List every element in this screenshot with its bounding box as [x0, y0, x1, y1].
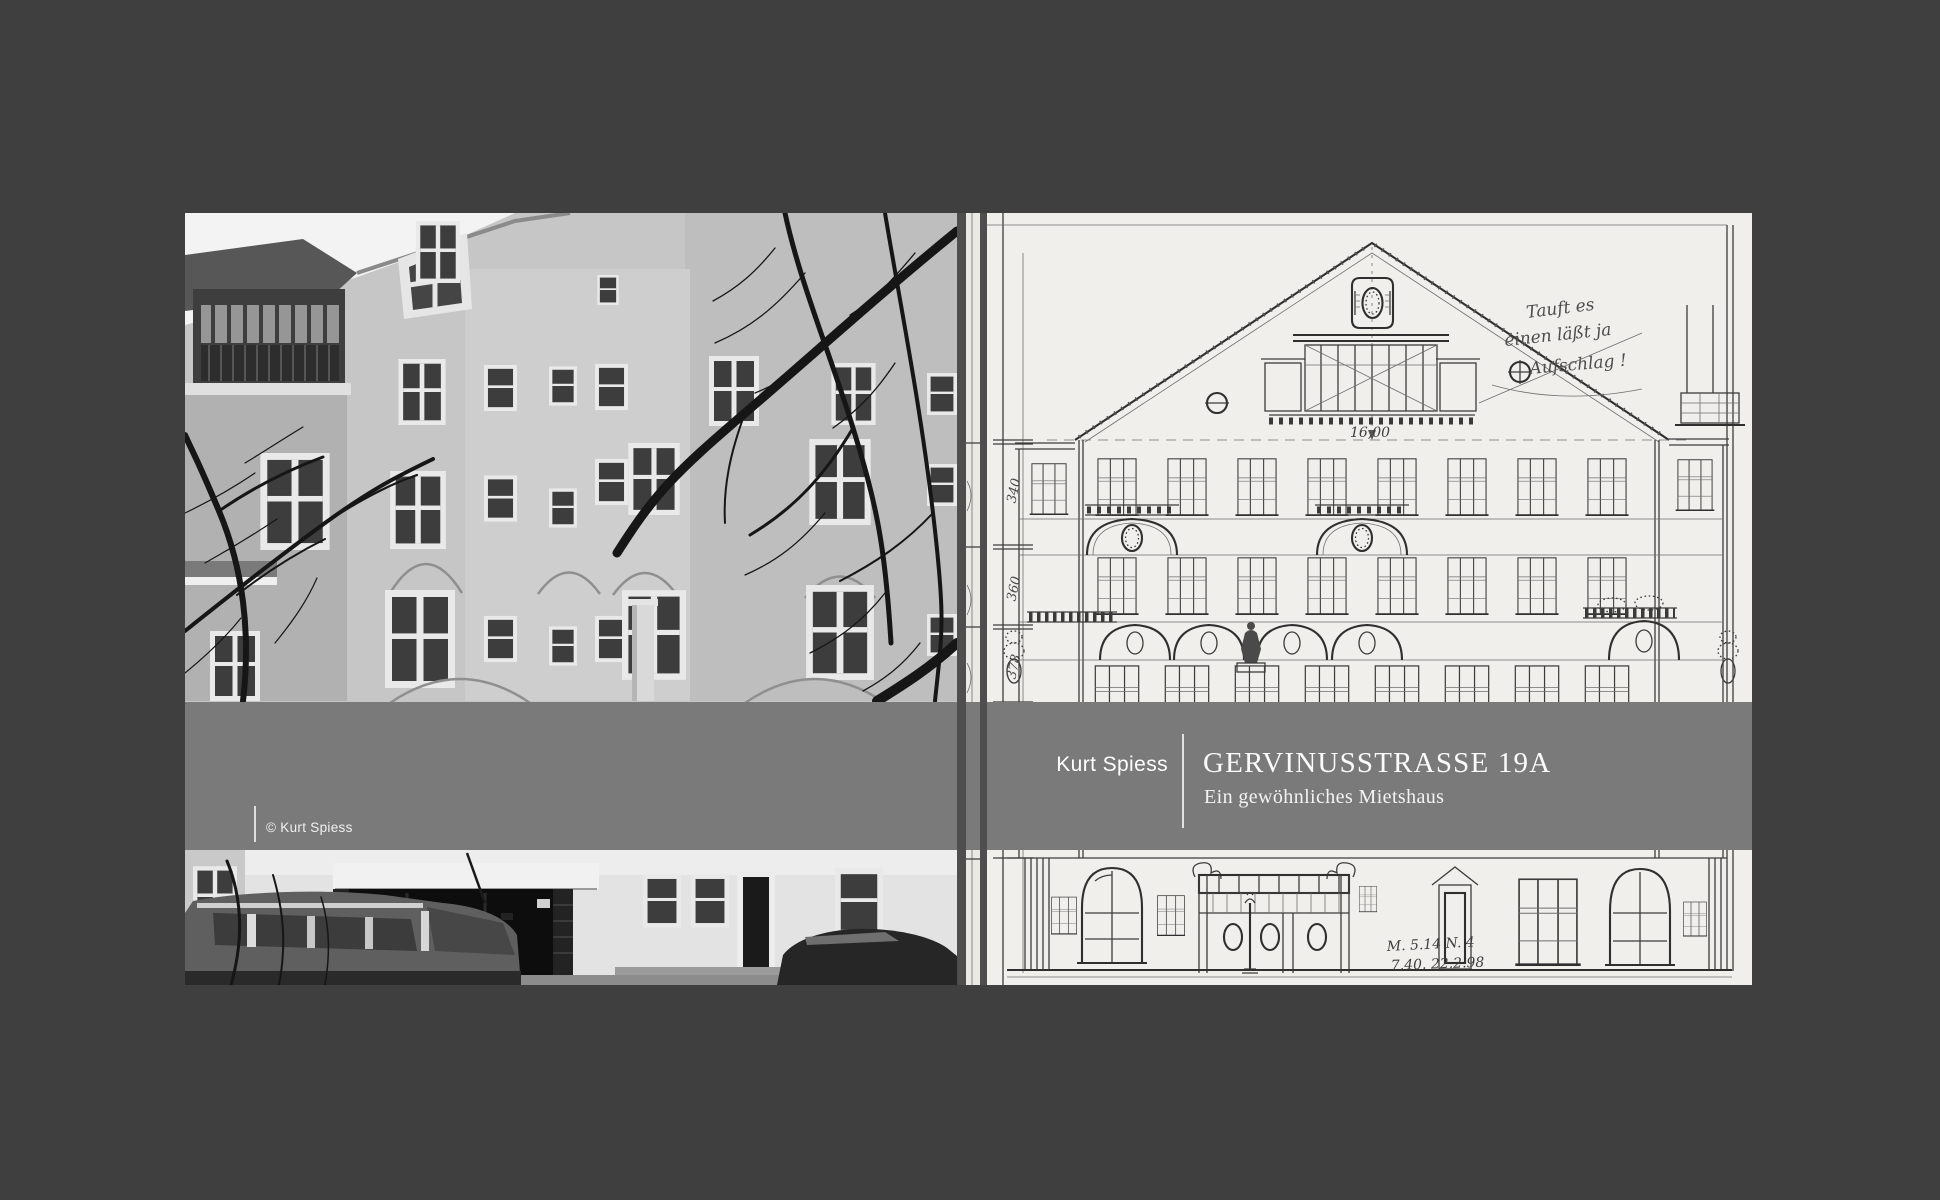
attic-window-band: [1205, 335, 1532, 421]
svg-text:7.40. 22.2.98: 7.40. 22.2.98: [1391, 955, 1485, 974]
dimension-label: 340: [1004, 477, 1024, 504]
photo-page: [185, 213, 957, 985]
total-width-dimension: 16,00: [1350, 425, 1390, 441]
arched-window-right: [1605, 869, 1675, 965]
arched-window-left: [1077, 868, 1147, 963]
edge-finial-right: [1718, 631, 1738, 683]
facade-column: [628, 599, 658, 701]
drawing-window-row-1: [1030, 459, 1715, 515]
house-number-plaque: [537, 899, 550, 908]
margin-dimension-chain: 340 360 378: [993, 213, 1033, 985]
drawing-window-row-2: [1095, 558, 1628, 614]
photo-credit: © Kurt Spiess: [266, 820, 353, 835]
building-title: GERVINUSSTRASSE 19A: [1203, 747, 1551, 780]
title-divider-line: [1182, 734, 1184, 828]
handwritten-date-note: M. 5.14 N. 4 7.40. 22.2.98: [1385, 934, 1484, 974]
ground-floor-photo: [185, 849, 957, 985]
facade-photo-illustration: [185, 213, 957, 985]
drawing-page: 340 360 378: [987, 213, 1752, 985]
gable: [1047, 243, 1692, 442]
balconies: [1027, 596, 1677, 622]
svg-text:einen läßt ja: einen läßt ja: [1503, 320, 1612, 351]
lamp-post: [1242, 893, 1258, 974]
drawing-ground-floor: M. 5.14 N. 4 7.40. 22.2.98: [1007, 858, 1732, 977]
credit-divider-line: [254, 806, 256, 842]
small-arches-and-statue: [1004, 621, 1738, 683]
facade-elevation-drawing: 340 360 378: [987, 213, 1752, 985]
entrance-portal: [1193, 863, 1355, 973]
gutter-shadow-right: [980, 213, 987, 985]
book-spread-background: 340 360 378: [0, 0, 1940, 1200]
entry-door: [737, 871, 775, 975]
subtitle: Ein gewöhnliches Mietshaus: [1204, 786, 1444, 809]
svg-text:M. 5.14 N. 4: M. 5.14 N. 4: [1385, 934, 1475, 955]
author-name: Kurt Spiess: [1000, 753, 1168, 777]
right-margin-and-detail: [987, 225, 1745, 971]
dimension-label: 360: [1004, 575, 1024, 602]
gutter-shadow-left: [957, 213, 966, 985]
arched-bays: [1085, 505, 1409, 555]
handwritten-note: Tauft es einen läßt ja Aufschlag !: [1479, 295, 1642, 403]
oval-cartouche: [1352, 278, 1393, 328]
svg-text:Tauft es: Tauft es: [1525, 295, 1596, 323]
pedimented-door: [1432, 867, 1478, 969]
